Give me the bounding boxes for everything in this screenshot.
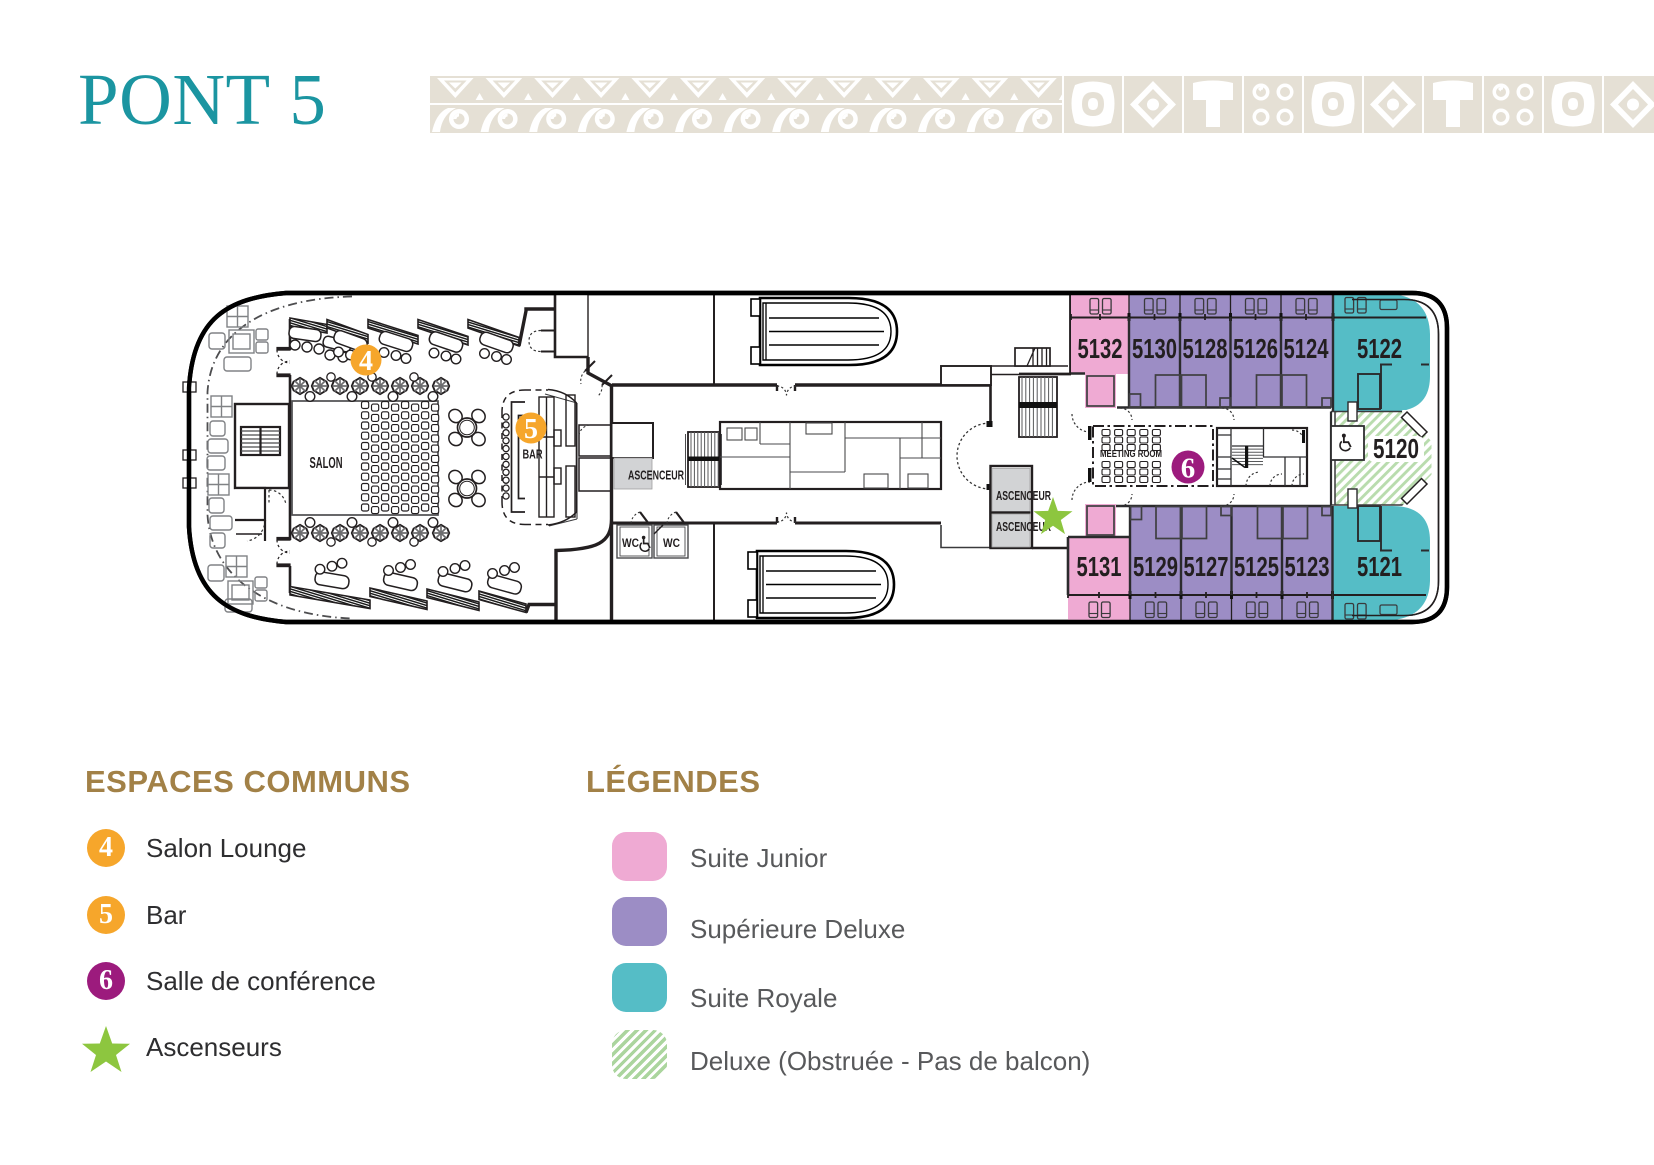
svg-text:SALON: SALON [310, 455, 343, 472]
svg-text:5: 5 [524, 414, 538, 445]
svg-text:5131: 5131 [1077, 551, 1122, 582]
svg-text:5127: 5127 [1184, 551, 1229, 582]
svg-text:ASCENCEUR: ASCENCEUR [996, 488, 1051, 503]
svg-text:5132: 5132 [1078, 333, 1123, 364]
svg-text:5128: 5128 [1183, 333, 1228, 364]
svg-text:5130: 5130 [1132, 333, 1177, 364]
svg-text:5129: 5129 [1133, 551, 1178, 582]
svg-text:ASCENCEUR: ASCENCEUR [628, 468, 684, 483]
svg-text:4: 4 [359, 346, 373, 377]
svg-text:5123: 5123 [1285, 551, 1330, 582]
svg-text:5122: 5122 [1357, 333, 1402, 364]
svg-text:6: 6 [1181, 453, 1196, 485]
svg-text:5126: 5126 [1233, 333, 1278, 364]
svg-text:WC: WC [663, 536, 680, 550]
svg-text:MEETING ROOM: MEETING ROOM [1100, 449, 1162, 460]
svg-text:WC: WC [622, 536, 639, 550]
svg-text:5121: 5121 [1357, 551, 1402, 582]
svg-text:5124: 5124 [1284, 333, 1330, 364]
svg-text:5125: 5125 [1234, 551, 1279, 582]
svg-text:BAR: BAR [523, 447, 543, 462]
svg-text:5120: 5120 [1373, 433, 1419, 464]
